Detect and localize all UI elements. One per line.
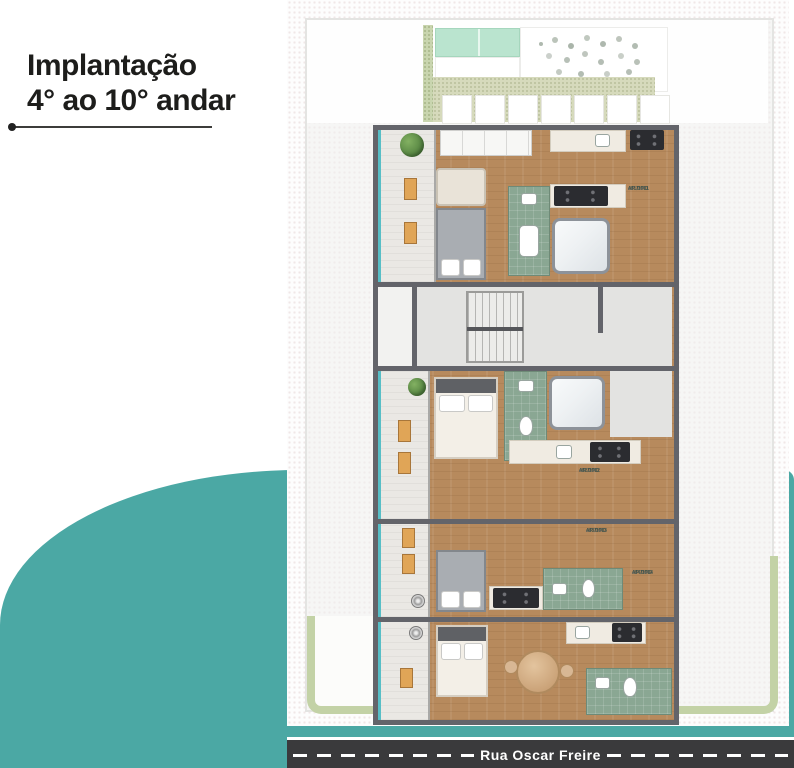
skylight bbox=[442, 95, 472, 124]
bathtub bbox=[519, 225, 539, 257]
vent-fan bbox=[409, 626, 423, 640]
balcony-glass bbox=[378, 524, 381, 617]
bed-pillows bbox=[441, 259, 481, 276]
bathroom bbox=[508, 186, 550, 276]
building-footprint: AP TIPO 401/1001 A=··,··m² bbox=[373, 125, 679, 725]
sofa bbox=[436, 168, 486, 206]
skylight bbox=[574, 95, 604, 124]
exterior-gap bbox=[378, 287, 412, 366]
planter-strip bbox=[423, 25, 433, 122]
wall bbox=[412, 287, 417, 366]
elevator bbox=[549, 376, 605, 430]
title-underline-dot bbox=[8, 123, 16, 131]
stove bbox=[630, 130, 664, 150]
sink bbox=[595, 134, 610, 147]
wall bbox=[598, 287, 603, 333]
bathroom bbox=[586, 668, 672, 715]
balcony-shelf bbox=[404, 178, 417, 200]
headboard bbox=[436, 379, 496, 393]
page-title-line1: Implantação bbox=[27, 48, 235, 83]
chair bbox=[504, 660, 518, 674]
sink bbox=[521, 193, 537, 205]
skylight bbox=[607, 95, 637, 124]
kitchen-counter bbox=[550, 130, 626, 152]
skylight bbox=[640, 95, 670, 124]
toilet bbox=[519, 416, 533, 436]
sink bbox=[552, 583, 567, 595]
road-center-line bbox=[293, 754, 474, 757]
cooktop bbox=[554, 186, 608, 206]
bed-pillows bbox=[439, 395, 493, 412]
page-title-line2: 4° ao 10° andar bbox=[27, 83, 235, 118]
service-room bbox=[610, 371, 672, 437]
sink bbox=[518, 380, 534, 392]
vent-fan bbox=[411, 594, 425, 608]
plant-sketches bbox=[539, 42, 543, 46]
bed-pillows bbox=[441, 643, 483, 660]
balcony-shelf bbox=[398, 452, 411, 474]
bed bbox=[436, 625, 488, 697]
balcony-shelf bbox=[398, 420, 411, 442]
skylight bbox=[508, 95, 538, 124]
bed-pillows bbox=[441, 591, 481, 608]
sink bbox=[556, 445, 572, 459]
bathroom bbox=[543, 568, 623, 610]
balcony-shelf bbox=[400, 668, 413, 688]
road-center-line bbox=[607, 754, 788, 757]
sink bbox=[595, 677, 610, 689]
bed bbox=[436, 550, 486, 612]
bed bbox=[436, 208, 486, 280]
dining-table bbox=[516, 650, 560, 694]
balcony-shelf bbox=[402, 528, 415, 548]
floor-plan-area: AP TIPO 401/1001 A=··,··m² bbox=[287, 0, 789, 726]
title-underline bbox=[10, 126, 212, 128]
site-plan-image: Implantação 4° ao 10° andar bbox=[0, 0, 794, 768]
cooktop bbox=[493, 588, 539, 608]
stair-hall bbox=[412, 287, 672, 366]
skylight bbox=[541, 95, 571, 124]
stairs bbox=[466, 291, 524, 363]
garden-bed-left bbox=[307, 616, 381, 714]
toilet bbox=[582, 579, 595, 598]
balcony-glass bbox=[378, 371, 381, 519]
headboard bbox=[438, 627, 486, 641]
tree bbox=[400, 133, 424, 157]
balcony-glass bbox=[378, 130, 381, 282]
bed bbox=[434, 377, 498, 459]
road-rua-oscar-freire: Rua Oscar Freire bbox=[287, 737, 794, 768]
balcony-shelf bbox=[404, 222, 417, 244]
sink bbox=[575, 626, 590, 639]
title-block: Implantação 4° ao 10° andar bbox=[27, 48, 235, 118]
tree bbox=[408, 378, 426, 396]
roof-glass-panel bbox=[435, 28, 520, 57]
closet bbox=[440, 130, 532, 156]
balcony-shelf bbox=[402, 554, 415, 574]
road-label: Rua Oscar Freire bbox=[480, 747, 601, 763]
skylight bbox=[475, 95, 505, 124]
chair bbox=[560, 664, 574, 678]
stove bbox=[590, 442, 630, 462]
stove bbox=[612, 623, 642, 642]
garden-bed-right bbox=[675, 556, 778, 714]
toilet bbox=[623, 677, 637, 697]
elevator bbox=[552, 218, 610, 274]
balcony-glass bbox=[378, 622, 381, 720]
